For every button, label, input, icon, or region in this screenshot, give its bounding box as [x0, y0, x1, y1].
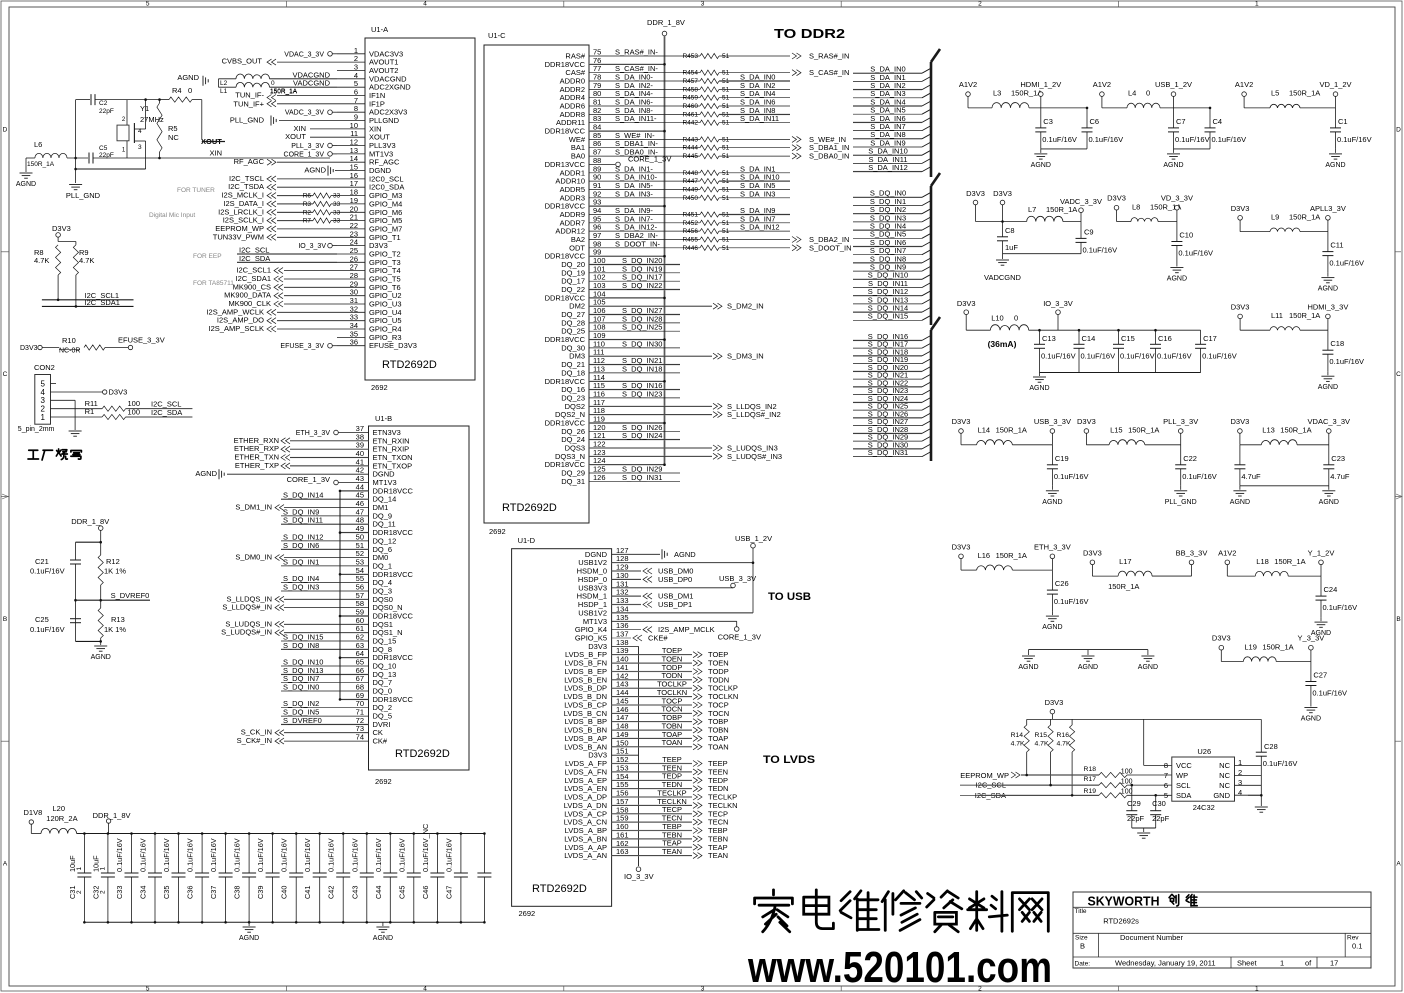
svg-text:A1V2: A1V2 [959, 80, 977, 89]
svg-text:4.7K: 4.7K [34, 256, 49, 265]
svg-text:6: 6 [1164, 781, 1168, 790]
svg-text:R5: R5 [168, 124, 178, 133]
svg-text:51: 51 [722, 228, 730, 235]
svg-text:D3V3: D3V3 [952, 417, 971, 426]
svg-text:C25: C25 [35, 615, 49, 624]
svg-text:S_DQ_IN6: S_DQ_IN6 [283, 541, 319, 550]
svg-text:S_LUDQS#_IN3: S_LUDQS#_IN3 [727, 452, 782, 461]
svg-text:TEAN: TEAN [662, 847, 682, 856]
svg-text:U1-A: U1-A [371, 25, 388, 34]
svg-text:L16: L16 [978, 551, 991, 560]
svg-text:R18: R18 [1084, 766, 1097, 773]
svg-text:C2: C2 [99, 100, 108, 107]
svg-text:NC: NC [1219, 781, 1230, 790]
svg-text:C28: C28 [1264, 742, 1278, 751]
svg-text:VADCGND: VADCGND [984, 273, 1022, 282]
svg-text:RTD2692D: RTD2692D [532, 883, 587, 895]
svg-text:C23: C23 [1331, 454, 1345, 463]
svg-text:A: A [1396, 861, 1401, 868]
svg-text:R6: R6 [303, 193, 312, 200]
svg-text:L20: L20 [53, 804, 66, 813]
svg-text:0.1uF/16V: 0.1uF/16V [1312, 689, 1347, 698]
svg-text:Document Number: Document Number [1120, 933, 1183, 942]
svg-text:4.7K: 4.7K [1035, 741, 1049, 748]
svg-text:22pF: 22pF [99, 152, 114, 159]
svg-text:L2: L2 [220, 80, 228, 87]
svg-text:IO_3_3V: IO_3_3V [298, 243, 326, 250]
svg-text:4.7uF: 4.7uF [1330, 472, 1350, 481]
svg-text:1: 1 [122, 148, 126, 154]
svg-text:2692: 2692 [375, 777, 392, 786]
svg-text:51: 51 [722, 53, 730, 60]
svg-text:D3V3: D3V3 [966, 189, 985, 198]
svg-text:USB_1_2V: USB_1_2V [735, 534, 772, 543]
svg-text:51: 51 [722, 70, 730, 77]
svg-text:A1V2: A1V2 [1093, 80, 1111, 89]
svg-text:DQ_31: DQ_31 [561, 477, 585, 486]
svg-text:R2: R2 [303, 209, 312, 216]
svg-text:2692: 2692 [489, 527, 506, 536]
svg-text:S_DQ_IN0: S_DQ_IN0 [283, 683, 319, 692]
svg-text:1K 1%: 1K 1% [104, 625, 126, 634]
svg-text:4.7K: 4.7K [79, 256, 94, 265]
svg-text:0.1uF/16V: 0.1uF/16V [233, 838, 242, 872]
svg-text:1uF: 1uF [1005, 243, 1018, 252]
svg-text:R455: R455 [682, 237, 698, 244]
svg-text:1K 1%: 1K 1% [104, 567, 126, 576]
svg-text:150R_1A: 150R_1A [27, 161, 55, 168]
svg-text:0.1uF/16V: 0.1uF/16V [1329, 259, 1364, 268]
svg-text:Date:: Date: [1075, 961, 1091, 968]
svg-text:C33: C33 [115, 886, 124, 899]
svg-text:AGND: AGND [1018, 664, 1038, 671]
svg-text:C22: C22 [1183, 454, 1197, 463]
svg-text:L10: L10 [991, 313, 1004, 322]
svg-text:L19: L19 [1244, 642, 1257, 651]
svg-text:C36: C36 [186, 886, 195, 899]
svg-text:R452: R452 [682, 220, 698, 227]
svg-text:S_RAS#_IN-: S_RAS#_IN- [615, 48, 658, 57]
svg-text:R451: R451 [682, 212, 698, 219]
svg-text:www.520101.com: www.520101.com [747, 943, 1052, 992]
svg-text:126: 126 [593, 473, 606, 482]
svg-text:L13: L13 [1262, 426, 1275, 435]
svg-text:VDAC_3_3V: VDAC_3_3V [284, 51, 324, 58]
svg-text:C13: C13 [1042, 334, 1056, 343]
svg-text:NC: NC [1219, 771, 1230, 780]
svg-text:Sheet: Sheet [1237, 959, 1258, 968]
svg-text:R14: R14 [1011, 732, 1024, 739]
svg-text:D3V3: D3V3 [109, 388, 128, 397]
svg-text:5: 5 [146, 1, 150, 8]
svg-text:C19: C19 [1055, 454, 1069, 463]
svg-text:R12: R12 [106, 557, 120, 566]
svg-text:TO USB: TO USB [768, 591, 811, 603]
svg-text:150R_1A: 150R_1A [1274, 557, 1305, 566]
svg-text:150R_1A: 150R_1A [1046, 205, 1077, 214]
svg-text:S_DM1_IN: S_DM1_IN [235, 503, 272, 512]
svg-text:L17: L17 [1119, 557, 1132, 566]
svg-text:PLL_3_3V: PLL_3_3V [291, 143, 324, 150]
svg-text:D3V3: D3V3 [1045, 698, 1064, 707]
svg-text:0.1uF/16V: 0.1uF/16V [1083, 246, 1118, 255]
svg-text:150R_1A: 150R_1A [270, 89, 298, 96]
svg-text:C34: C34 [139, 886, 148, 899]
svg-text:S_DA_IN11-: S_DA_IN11- [615, 114, 657, 123]
svg-text:EFUSE_D3V3: EFUSE_D3V3 [369, 341, 417, 350]
svg-text:CKE#: CKE# [648, 634, 668, 643]
svg-text:AGND: AGND [1167, 276, 1187, 283]
svg-text:D3V3: D3V3 [1212, 634, 1231, 643]
svg-text:C5: C5 [99, 145, 108, 152]
svg-text:L9: L9 [1271, 212, 1279, 221]
svg-text:R453: R453 [682, 53, 698, 60]
svg-text:R447: R447 [682, 178, 698, 185]
svg-text:S_DQ_IN30: S_DQ_IN30 [622, 339, 662, 348]
svg-text:22pF: 22pF [1152, 814, 1170, 823]
svg-text:7: 7 [1164, 771, 1168, 780]
svg-text:17: 17 [1330, 959, 1338, 968]
svg-text:SDA: SDA [1176, 791, 1191, 800]
svg-text:D3V3: D3V3 [1077, 417, 1096, 426]
svg-text:2: 2 [100, 890, 107, 894]
svg-text:C45: C45 [397, 886, 406, 899]
svg-text:0.1uF/16V: 0.1uF/16V [1054, 597, 1089, 606]
svg-text:C44: C44 [374, 886, 383, 899]
svg-text:TUN33V_PWM: TUN33V_PWM [213, 232, 264, 241]
svg-text:S_DQ_IN3: S_DQ_IN3 [283, 583, 319, 592]
svg-text:Y_3_3V: Y_3_3V [1298, 634, 1325, 643]
svg-text:22pF: 22pF [1127, 814, 1145, 823]
svg-text:D3V3: D3V3 [1231, 302, 1250, 311]
svg-text:0.1uF/16V: 0.1uF/16V [139, 838, 148, 872]
svg-text:1: 1 [41, 413, 46, 422]
svg-text:22pF: 22pF [99, 108, 114, 115]
svg-text:WP: WP [1176, 771, 1188, 780]
svg-text:C18: C18 [1330, 339, 1344, 348]
svg-text:S_DQ_IN22: S_DQ_IN22 [622, 281, 662, 290]
svg-text:USB_3_3V: USB_3_3V [719, 574, 756, 583]
svg-text:D3V3: D3V3 [52, 224, 71, 233]
svg-text:C27: C27 [1313, 671, 1327, 680]
svg-text:150R_1A: 150R_1A [1011, 89, 1042, 98]
svg-text:0.1uF/16V: 0.1uF/16V [115, 838, 124, 872]
svg-text:R446: R446 [682, 245, 698, 252]
svg-text:0.1uF/16V: 0.1uF/16V [1178, 249, 1213, 258]
svg-text:1: 1 [76, 867, 83, 871]
svg-text:TUN_IF-: TUN_IF- [235, 91, 264, 100]
svg-text:PLL_GND: PLL_GND [1165, 499, 1197, 506]
svg-text:B: B [1396, 616, 1400, 623]
svg-text:3: 3 [701, 986, 705, 993]
svg-text:AGND: AGND [1078, 664, 1098, 671]
svg-text:S_DQ_IN14: S_DQ_IN14 [283, 491, 323, 500]
svg-text:R442: R442 [682, 120, 698, 127]
svg-text:USB_DP1: USB_DP1 [658, 600, 692, 609]
svg-text:C24: C24 [1324, 585, 1338, 594]
svg-text:C15: C15 [1121, 334, 1135, 343]
svg-text:CORE_1_3V: CORE_1_3V [287, 475, 330, 484]
svg-text:0.1uF/16V: 0.1uF/16V [1120, 351, 1155, 360]
svg-text:C35: C35 [162, 886, 171, 899]
svg-text:USB_DP0: USB_DP0 [658, 575, 692, 584]
svg-text:D3V3: D3V3 [993, 189, 1012, 198]
svg-text:R448: R448 [682, 170, 698, 177]
svg-text:S_DQ_IN15: S_DQ_IN15 [868, 312, 908, 321]
svg-text:0.1uF/16V: 0.1uF/16V [1329, 357, 1364, 366]
svg-text:S_DOOT_IN-: S_DOOT_IN- [615, 239, 661, 248]
svg-text:C38: C38 [233, 886, 242, 899]
svg-text:TUN_IF+: TUN_IF+ [233, 99, 264, 108]
svg-text:L18: L18 [1256, 557, 1269, 566]
svg-text:1: 1 [1255, 986, 1259, 993]
svg-text:TO DDR2: TO DDR2 [774, 27, 845, 41]
svg-text:24C32: 24C32 [1193, 803, 1215, 812]
svg-text:L15: L15 [1110, 426, 1123, 435]
svg-text:IO_3_3V: IO_3_3V [624, 872, 654, 881]
svg-text:AGND: AGND [1163, 162, 1183, 169]
svg-text:5: 5 [146, 986, 150, 993]
svg-text:R7: R7 [303, 218, 312, 225]
svg-text:0.1uF/16V: 0.1uF/16V [1323, 603, 1358, 612]
svg-text:ETH_3_3V: ETH_3_3V [296, 430, 331, 437]
svg-text:4: 4 [423, 986, 427, 993]
svg-text:U1-B: U1-B [375, 414, 392, 423]
svg-text:IO_3_3V: IO_3_3V [1043, 299, 1073, 308]
svg-text:S_DM3_IN: S_DM3_IN [727, 352, 764, 361]
svg-text:D3V3: D3V3 [1107, 194, 1126, 203]
svg-text:XOUT: XOUT [285, 132, 306, 141]
svg-text:S_DA_IN11: S_DA_IN11 [740, 114, 779, 123]
svg-text:4.7uF: 4.7uF [1241, 472, 1261, 481]
svg-text:C8: C8 [1005, 226, 1015, 235]
svg-text:51: 51 [722, 145, 730, 152]
svg-text:150R_1A: 150R_1A [1289, 212, 1320, 221]
svg-text:DDR_1_8V: DDR_1_8V [647, 18, 685, 27]
svg-text:R456: R456 [682, 228, 698, 235]
svg-text:0.1uF/16V: 0.1uF/16V [1089, 135, 1124, 144]
svg-text:4: 4 [423, 1, 427, 8]
svg-text:VCC: VCC [1176, 761, 1192, 770]
svg-text:D1V8: D1V8 [24, 808, 43, 817]
svg-text:EFUSE_3_3V: EFUSE_3_3V [280, 343, 324, 350]
svg-text:150R_1A: 150R_1A [1289, 89, 1320, 98]
svg-text:0: 0 [1146, 89, 1150, 98]
svg-text:163: 163 [616, 847, 629, 856]
svg-text:AGND: AGND [195, 469, 217, 478]
svg-text:S_DVREF0: S_DVREF0 [283, 716, 322, 725]
svg-text:R460: R460 [682, 103, 698, 110]
svg-text:C: C [3, 371, 8, 378]
svg-text:0.1uF/16V: 0.1uF/16V [1042, 135, 1077, 144]
svg-text:Digital Mic Input: Digital Mic Input [149, 212, 195, 219]
svg-text:2: 2 [122, 117, 126, 123]
svg-text:RTD2692D: RTD2692D [502, 502, 557, 514]
svg-text:C11: C11 [1330, 241, 1343, 250]
svg-text:I2C_SDA1: I2C_SDA1 [85, 298, 120, 307]
svg-text:2: 2 [978, 1, 982, 8]
svg-text:2: 2 [76, 890, 83, 894]
svg-text:0.1uF/16V: 0.1uF/16V [444, 838, 453, 872]
svg-text:VD_3_3V: VD_3_3V [1161, 194, 1193, 203]
svg-text:ETHER_TXP: ETHER_TXP [235, 461, 279, 470]
svg-text:S_DQ_IN25: S_DQ_IN25 [622, 323, 662, 332]
svg-text:AGND: AGND [373, 935, 393, 942]
svg-text:0.1uF/16V: 0.1uF/16V [162, 838, 171, 872]
svg-text:Rev: Rev [1347, 935, 1359, 942]
svg-text:L11: L11 [1271, 311, 1283, 320]
svg-text:A1V2: A1V2 [1235, 80, 1253, 89]
svg-text:C4: C4 [1213, 117, 1223, 126]
svg-text:AGND: AGND [16, 181, 36, 188]
svg-text:RF_AGC: RF_AGC [234, 157, 265, 166]
svg-text:XIN: XIN [209, 149, 222, 158]
svg-text:L3: L3 [993, 89, 1001, 98]
svg-text:L7: L7 [1028, 205, 1036, 214]
svg-text:AGND: AGND [1230, 499, 1250, 506]
svg-text:VDAC_3_3V: VDAC_3_3V [1308, 417, 1351, 426]
svg-text:150R_1A: 150R_1A [1262, 642, 1293, 651]
svg-text:EFUSE_3_3V: EFUSE_3_3V [118, 336, 165, 345]
svg-text:Y_1_2V: Y_1_2V [1308, 548, 1335, 557]
svg-text:51: 51 [722, 170, 730, 177]
svg-text:C47: C47 [444, 886, 453, 899]
svg-text:C17: C17 [1203, 334, 1217, 343]
svg-text:Title: Title [1075, 908, 1087, 915]
svg-text:33: 33 [333, 209, 341, 216]
svg-text:0: 0 [188, 86, 192, 95]
svg-text:Wednesday, January 19, 2011: Wednesday, January 19, 2011 [1115, 959, 1216, 968]
svg-text:PLL_GND: PLL_GND [66, 191, 101, 200]
svg-text:51: 51 [722, 95, 730, 102]
svg-text:R457: R457 [682, 78, 698, 85]
svg-text:S_CAS#_IN: S_CAS#_IN [809, 68, 849, 77]
svg-text:S_DQ_IN31: S_DQ_IN31 [622, 473, 662, 482]
svg-text:51: 51 [722, 86, 730, 93]
svg-text:Size: Size [1075, 935, 1088, 942]
svg-text:0.1uF/16V: 0.1uF/16V [1337, 135, 1372, 144]
svg-text:S_DQ_IN31: S_DQ_IN31 [868, 448, 908, 457]
svg-text:D3V3: D3V3 [952, 542, 971, 551]
svg-text:36: 36 [350, 338, 358, 347]
svg-text:RTD2692s: RTD2692s [1103, 917, 1139, 926]
svg-text:R458: R458 [682, 86, 698, 93]
svg-text:C9: C9 [1084, 228, 1094, 237]
svg-text:Y1: Y1 [140, 104, 149, 113]
svg-text:S_RAS#_IN: S_RAS#_IN [809, 52, 849, 61]
svg-text:33: 33 [333, 201, 341, 208]
svg-text:100: 100 [1121, 789, 1133, 796]
svg-text:TOAN: TOAN [708, 742, 729, 751]
svg-text:C42: C42 [327, 886, 336, 899]
svg-text:0.1uF/16V: 0.1uF/16V [397, 838, 406, 872]
svg-text:1: 1 [1280, 959, 1284, 968]
svg-text:U26: U26 [1197, 747, 1211, 756]
svg-text:AGND: AGND [674, 550, 696, 559]
svg-text:150R_1A: 150R_1A [1280, 426, 1311, 435]
svg-text:2692: 2692 [371, 383, 388, 392]
svg-text:1: 1 [100, 867, 107, 871]
svg-text:0.1uF/16V: 0.1uF/16V [1157, 351, 1192, 360]
svg-text:AGND: AGND [1301, 716, 1321, 723]
svg-text:R445: R445 [682, 153, 698, 160]
svg-text:8: 8 [1164, 761, 1168, 770]
svg-text:150R_1A: 150R_1A [1128, 426, 1159, 435]
svg-text:S_DA_IN12: S_DA_IN12 [740, 223, 780, 232]
svg-text:S_DM2_IN: S_DM2_IN [727, 302, 764, 311]
svg-text:51: 51 [722, 220, 730, 227]
svg-text:AGND: AGND [1318, 286, 1338, 293]
svg-text:0.1uF/16V_NC: 0.1uF/16V_NC [421, 824, 430, 872]
svg-text:33: 33 [333, 218, 341, 225]
svg-text:0.1uF/16V: 0.1uF/16V [256, 838, 265, 872]
svg-text:0.1uF/16V: 0.1uF/16V [327, 838, 336, 872]
svg-text:I2C_SDA: I2C_SDA [151, 408, 182, 417]
svg-text:NC: NC [1219, 761, 1230, 770]
svg-text:AGND: AGND [304, 166, 326, 175]
svg-text:51: 51 [722, 186, 730, 193]
svg-text:C40: C40 [280, 886, 289, 899]
svg-text:120R_2A: 120R_2A [46, 814, 77, 823]
svg-text:C41: C41 [303, 886, 312, 899]
svg-text:S_DQ_IN24: S_DQ_IN24 [622, 431, 662, 440]
svg-text:51: 51 [722, 103, 730, 110]
svg-text:SKYWORTH: SKYWORTH [1088, 894, 1160, 909]
svg-text:S_LLDQS#_IN: S_LLDQS#_IN [222, 603, 272, 612]
svg-text:C43: C43 [350, 886, 359, 899]
svg-text:D3V3: D3V3 [1083, 548, 1102, 557]
svg-text:0.1uF/16V: 0.1uF/16V [30, 567, 65, 576]
svg-text:L4: L4 [1128, 89, 1136, 98]
svg-text:DDR_1_8V: DDR_1_8V [71, 517, 109, 526]
svg-text:HDMI_1_2V: HDMI_1_2V [1020, 80, 1061, 89]
svg-text:R444: R444 [682, 145, 698, 152]
svg-text:L5: L5 [1271, 89, 1279, 98]
svg-text:0: 0 [1014, 313, 1018, 322]
svg-text:PLL_GND: PLL_GND [230, 116, 265, 125]
svg-text:R4: R4 [172, 86, 182, 95]
svg-text:R13: R13 [111, 615, 125, 624]
svg-text:C3: C3 [1043, 117, 1053, 126]
svg-text:AGND: AGND [1042, 499, 1062, 506]
svg-text:U1-D: U1-D [518, 536, 536, 545]
svg-text:C14: C14 [1082, 334, 1096, 343]
svg-text:AGND: AGND [1031, 162, 1051, 169]
svg-text:(36mA): (36mA) [988, 339, 1017, 349]
svg-text:2692: 2692 [519, 909, 536, 918]
svg-text:0.1uF/16V: 0.1uF/16V [1041, 351, 1076, 360]
svg-text:0.1uF/16V: 0.1uF/16V [1182, 472, 1217, 481]
svg-text:100: 100 [1121, 768, 1133, 775]
svg-text:0.1uF/16V: 0.1uF/16V [1202, 351, 1237, 360]
svg-text:1: 1 [1255, 1, 1259, 8]
svg-text:3: 3 [138, 144, 142, 151]
svg-text:S_DBA0_IN: S_DBA0_IN [809, 152, 849, 161]
svg-text:AGND: AGND [1042, 624, 1062, 631]
svg-text:AGND: AGND [1029, 385, 1049, 392]
svg-text:3: 3 [701, 1, 705, 8]
svg-text:4.7K: 4.7K [1011, 741, 1025, 748]
svg-text:0.1uF/16V: 0.1uF/16V [280, 838, 289, 872]
svg-text:RTD2692D: RTD2692D [395, 748, 450, 760]
svg-text:C21: C21 [35, 557, 49, 566]
svg-text:S_DQ_IN23: S_DQ_IN23 [622, 389, 662, 398]
svg-text:R459: R459 [682, 95, 698, 102]
svg-text:S_CK#_IN: S_CK#_IN [237, 736, 272, 745]
svg-text:CORE_1_3V: CORE_1_3V [718, 633, 761, 642]
svg-text:S_LUDQS#_IN: S_LUDQS#_IN [221, 628, 272, 637]
svg-text:AGND: AGND [1138, 664, 1158, 671]
